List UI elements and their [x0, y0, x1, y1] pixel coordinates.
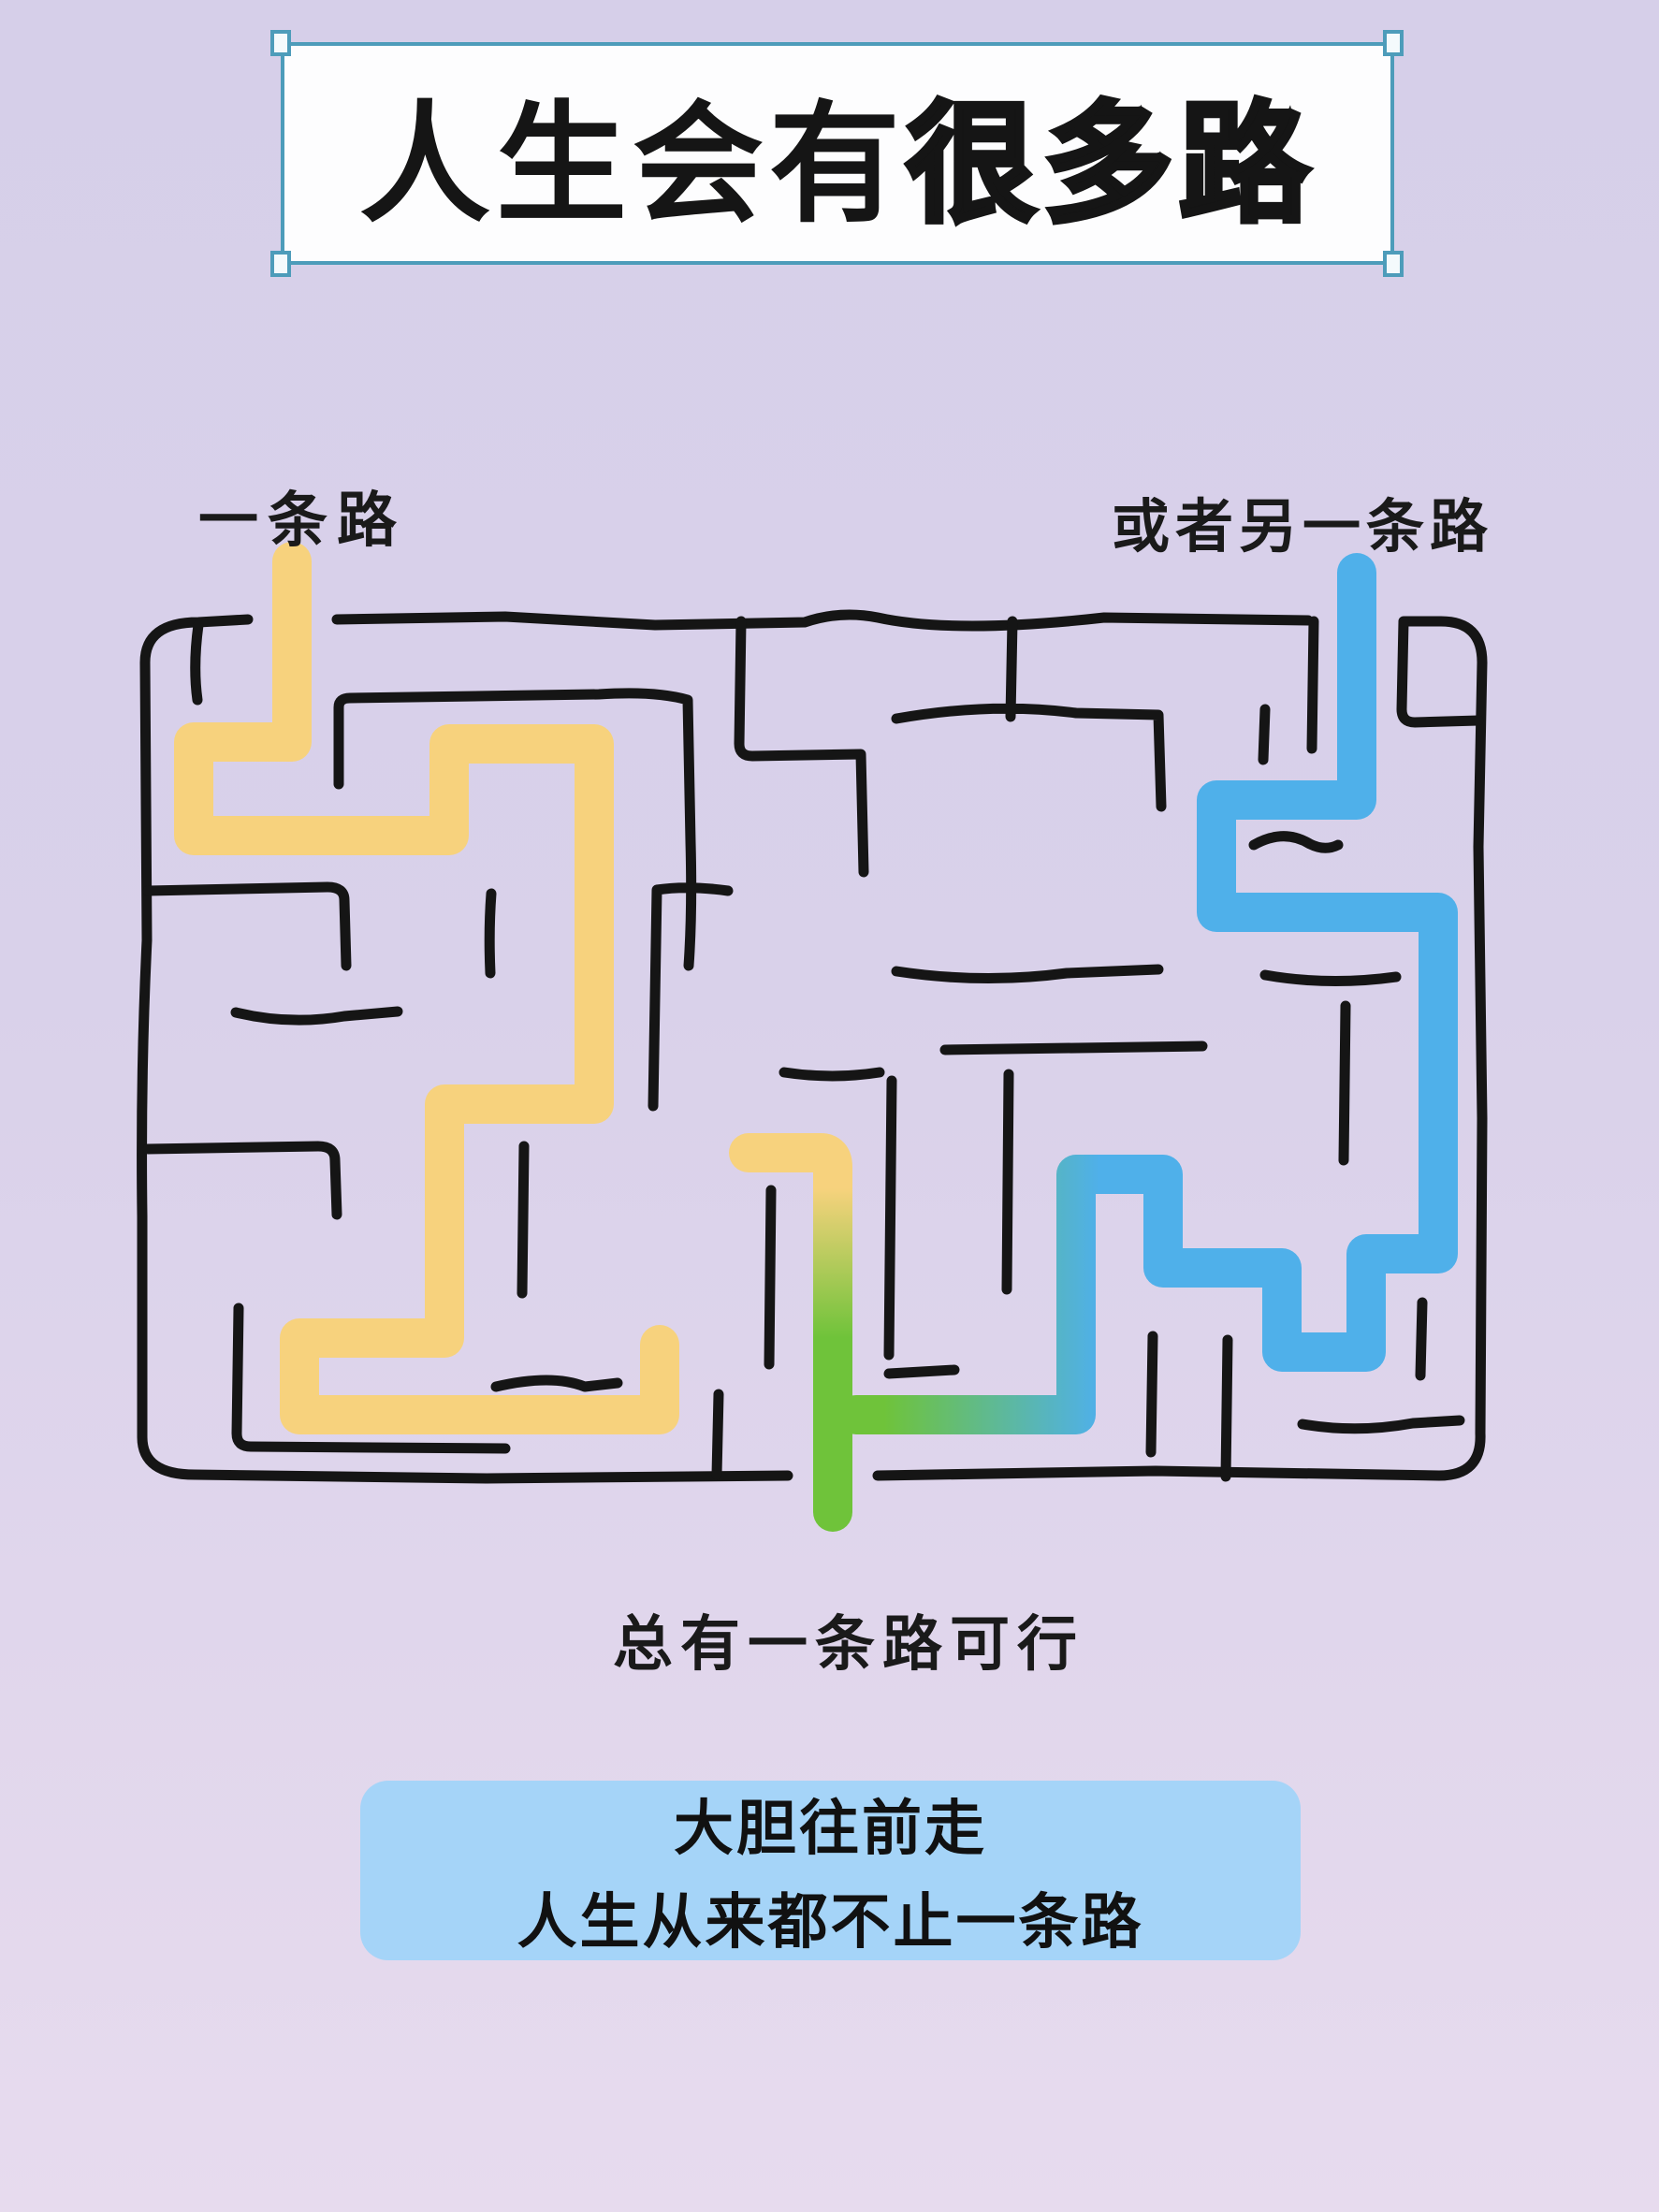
label-path-other: 或者另一条路 [1112, 479, 1493, 563]
poster-canvas: { "title": { "regular": "人生会有", "emphasi… [0, 0, 1659, 2212]
label-path-exit: 总有一条路可行 [613, 1596, 1084, 1682]
footer-line-2: 人生从来都不止一条路 [517, 1874, 1144, 1960]
footer-card: 大胆往前走 人生从来都不止一条路 [360, 1781, 1301, 1960]
label-path-one: 一条路 [198, 473, 406, 559]
path-green-exit [749, 1153, 833, 1512]
footer-line-1: 大胆往前走 [674, 1781, 987, 1867]
path-blue-route [856, 573, 1438, 1415]
